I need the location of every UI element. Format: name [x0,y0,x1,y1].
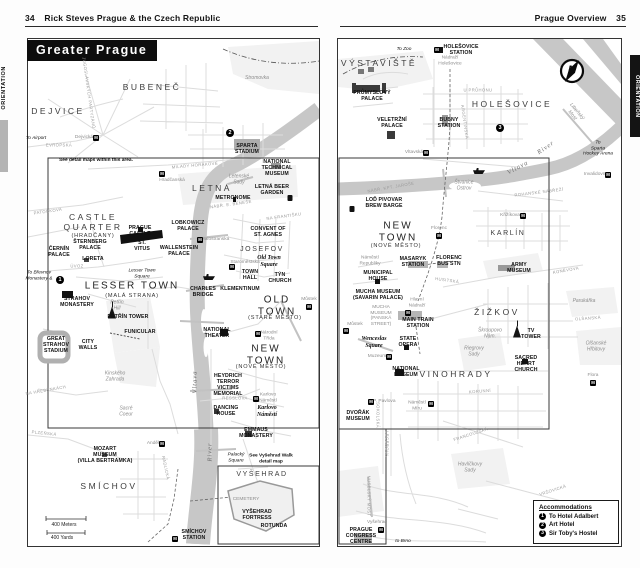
legend-item-label: Art Hotel [549,522,574,528]
prague-overview-map-graphics [338,39,621,546]
legend-item-label: To Hotel Adalbert [549,514,598,520]
left-page-header: 34 Rick Steves Prague & the Czech Republ… [25,13,220,23]
book-spread: 34 Rick Steves Prague & the Czech Republ… [0,0,640,568]
right-page-title: Prague Overview [535,13,607,23]
legend-item: 2 Art Hotel [539,522,613,529]
orientation-tab-left: ORIENTATION [1,66,7,110]
legend-title: Accommodations [539,504,613,511]
legend-item-label: Sir Toby's Hostel [549,531,597,537]
left-page-number: 34 [25,13,35,23]
left-header-rule [25,26,318,27]
legend-number-marker: 2 [539,522,546,529]
greater-prague-map [27,38,320,547]
map-title-banner: Greater Prague [27,40,157,61]
legend-number-marker: 3 [539,530,546,537]
orientation-tab-right: ORIENTATION [630,55,640,137]
right-page-header: Prague Overview 35 [535,13,626,23]
legend-item: 3 Sir Toby's Hostel [539,530,613,537]
orientation-tab-left-block [0,120,8,172]
legend-items: 1 To Hotel Adalbert 2 Art Hotel 3 Sir To… [539,513,613,537]
legend-item: 1 To Hotel Adalbert [539,513,613,520]
left-page-title: Rick Steves Prague & the Czech Republic [44,13,220,23]
right-page-number: 35 [616,13,626,23]
compass-north-label: N [568,64,576,76]
compass-rose: N [558,57,586,85]
legend-number-marker: 1 [539,513,546,520]
prague-overview-map [337,38,622,547]
accommodations-legend: Accommodations 1 To Hotel Adalbert 2 Art… [533,500,619,544]
right-header-rule [340,26,626,27]
greater-prague-map-graphics [28,39,319,546]
